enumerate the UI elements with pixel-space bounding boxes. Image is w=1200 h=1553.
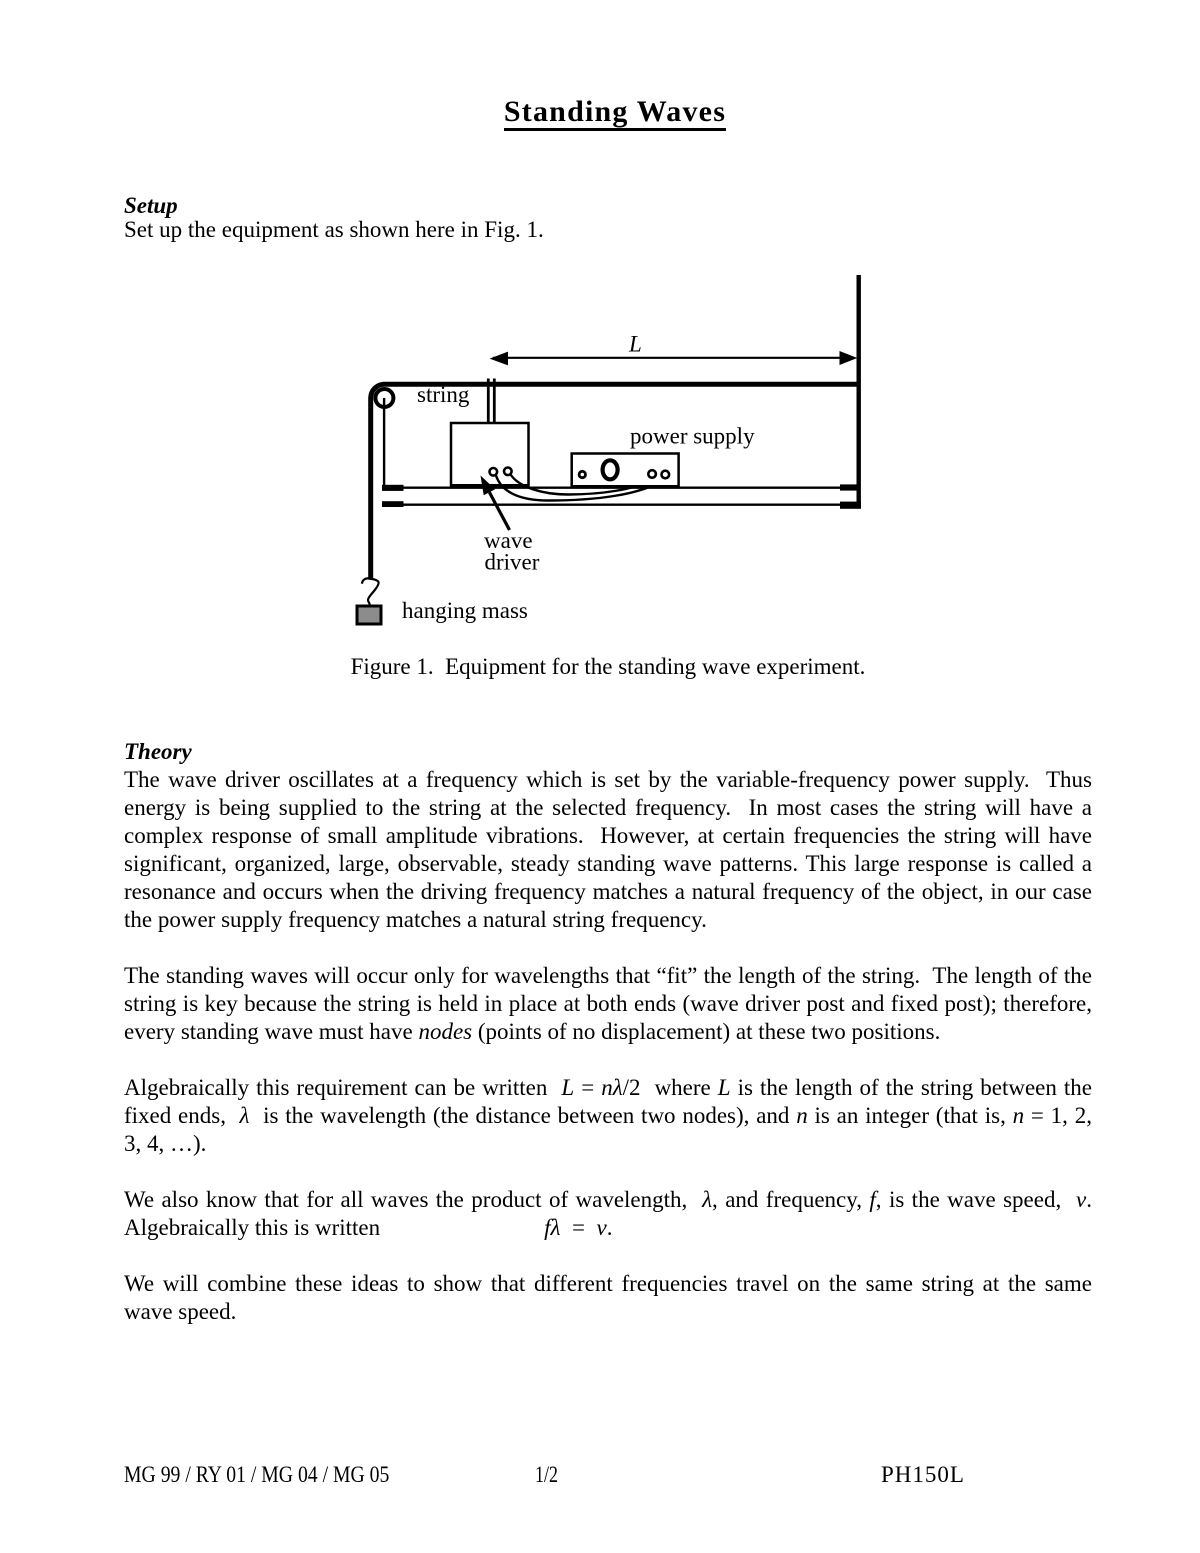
svg-text:driver: driver — [485, 550, 540, 575]
svg-text:L: L — [628, 332, 642, 357]
svg-text:hanging mass: hanging mass — [402, 598, 528, 623]
svg-text:power supply: power supply — [630, 424, 755, 449]
svg-text:string: string — [417, 382, 470, 407]
